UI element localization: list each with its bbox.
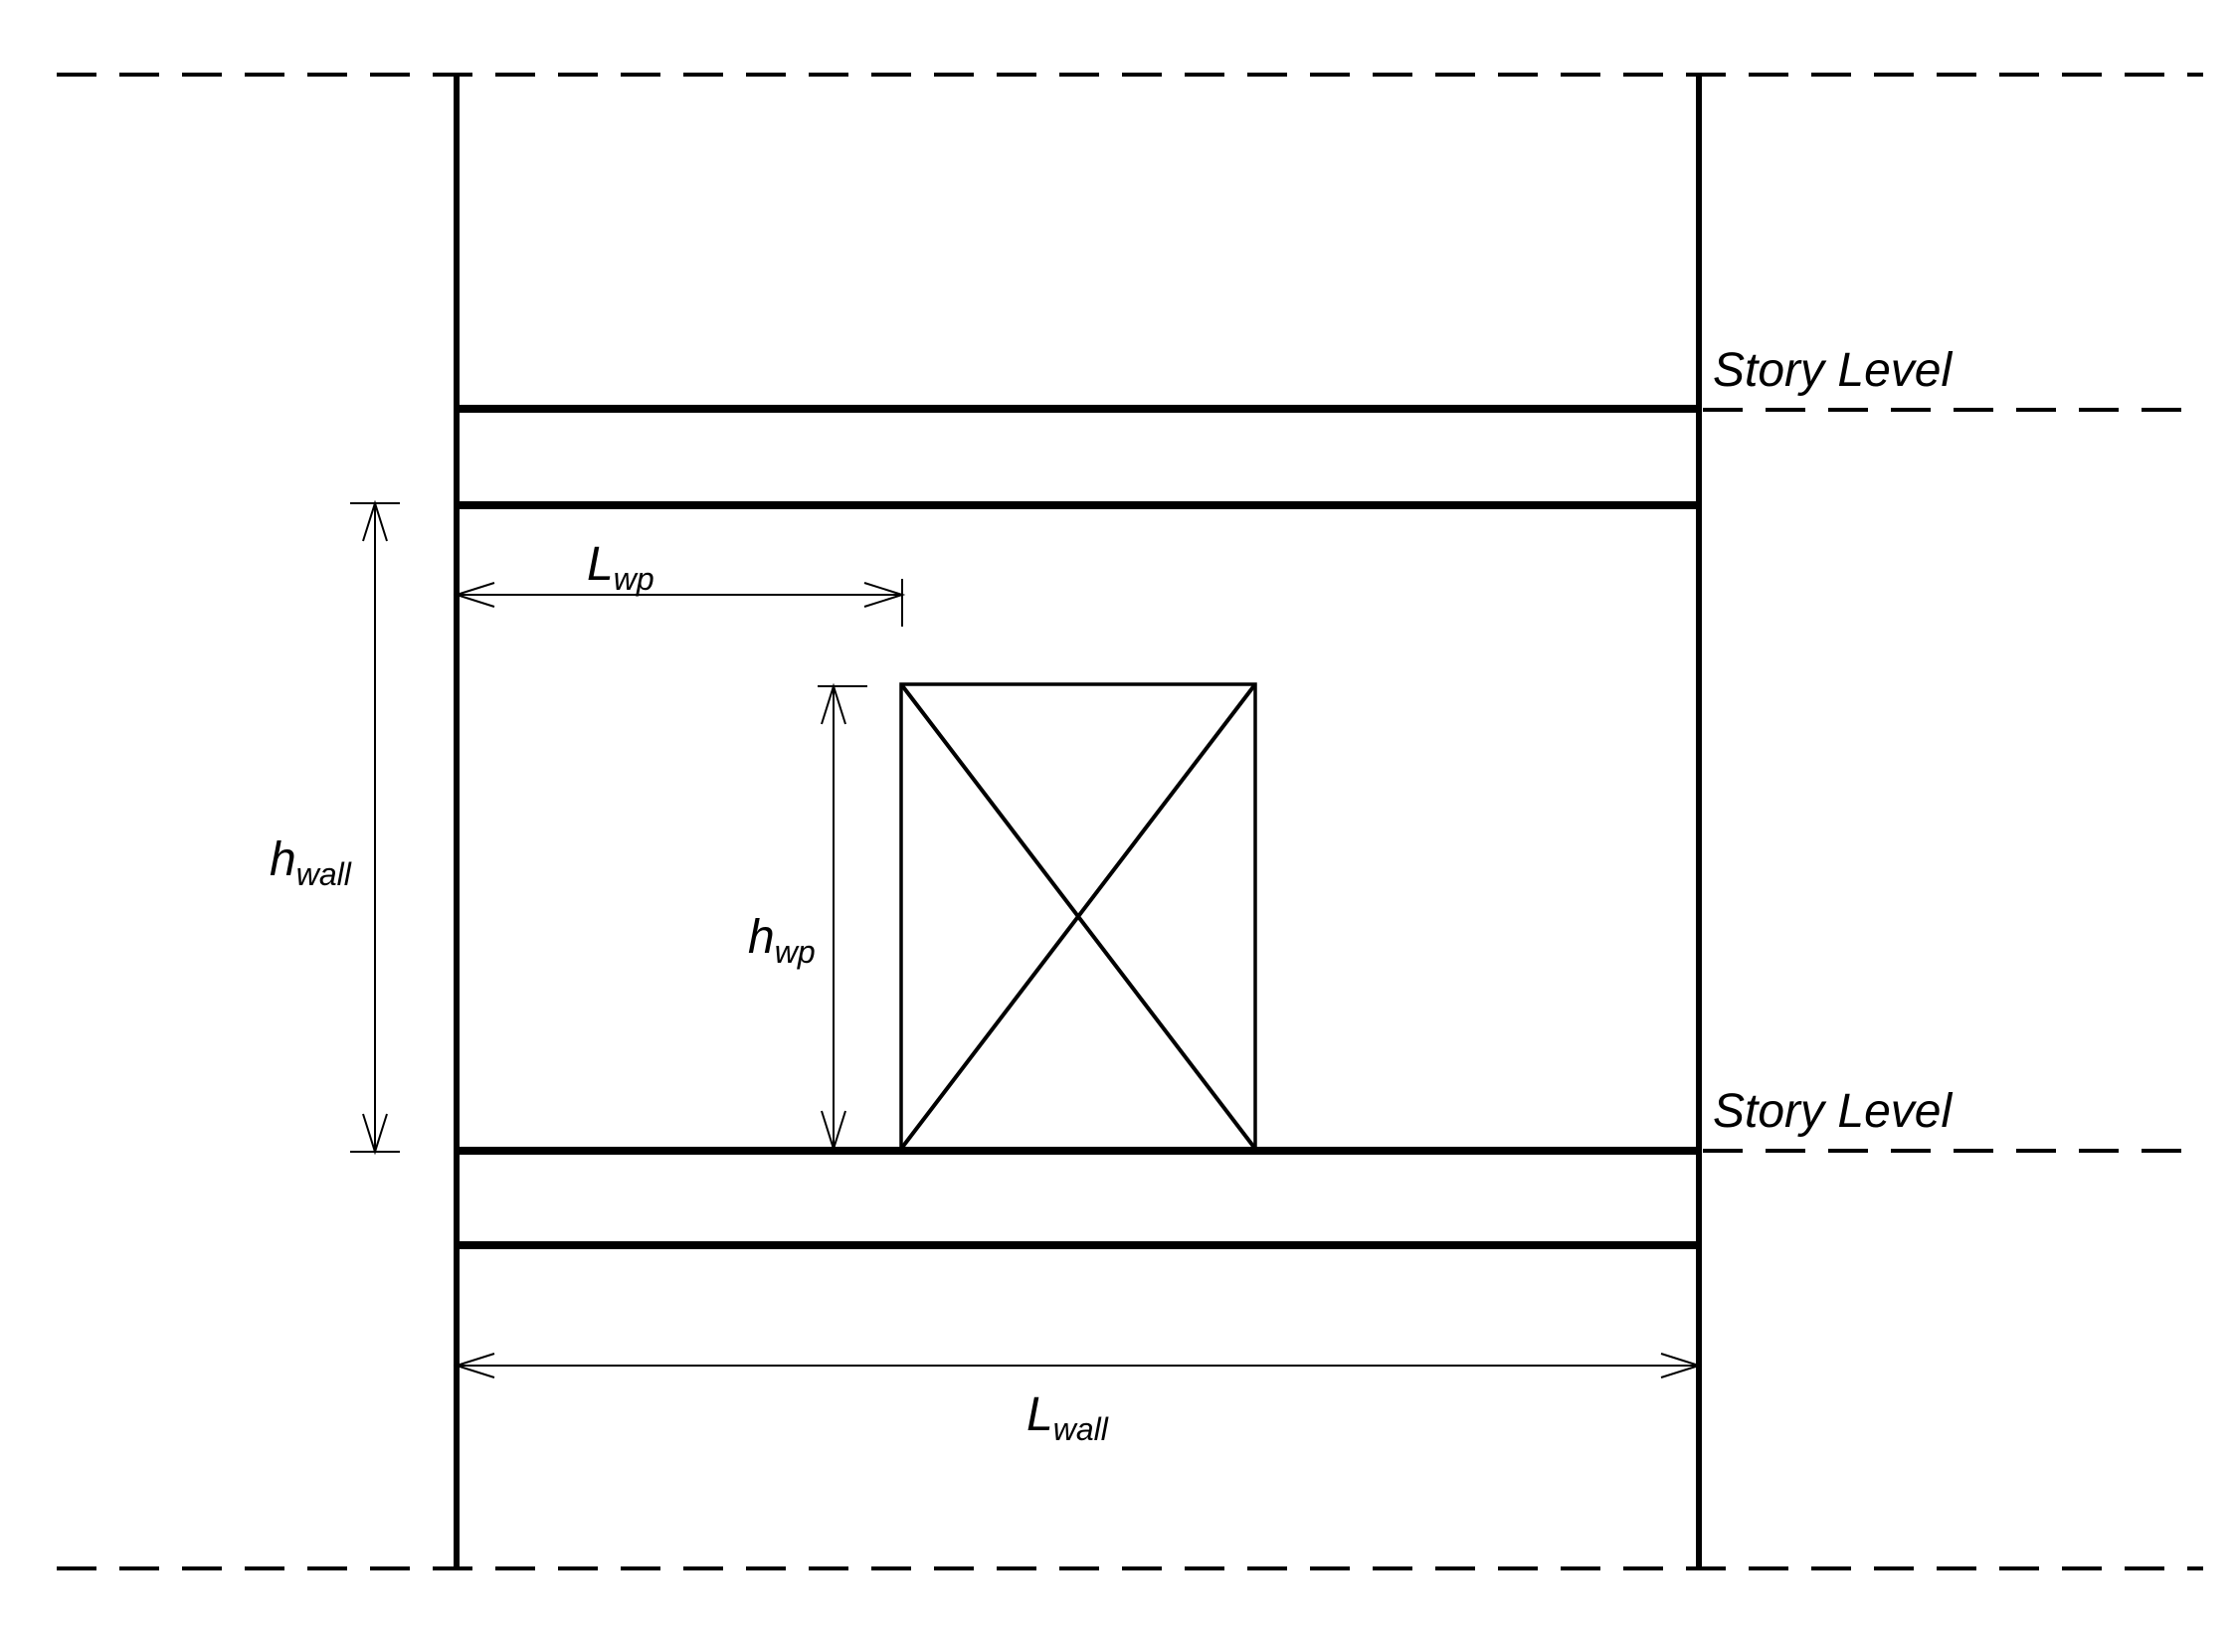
hwall-subscript: wall	[296, 856, 352, 892]
lwp-label: Lwp	[587, 538, 654, 597]
lwp-subscript: wp	[614, 561, 654, 597]
hwall-symbol: h	[270, 833, 296, 886]
lwp-symbol: L	[587, 538, 614, 591]
hwall-dimension: hwall	[270, 503, 400, 1152]
lwall-symbol: L	[1026, 1388, 1053, 1441]
floor-beam-lines	[457, 409, 1699, 1245]
lwall-label: Lwall	[1026, 1388, 1109, 1447]
lwp-dimension: Lwp	[457, 538, 902, 627]
wall-panel	[901, 684, 1255, 1149]
hwp-symbol: h	[748, 911, 775, 964]
story-level-label-top: Story Level	[1713, 344, 1953, 397]
hwp-dimension: hwp	[748, 686, 867, 1149]
hwall-label: hwall	[270, 833, 352, 892]
hwp-label: hwp	[748, 911, 816, 970]
walls	[457, 73, 1699, 1568]
dashed-lines	[57, 75, 2203, 1568]
hwp-subscript: wp	[775, 934, 816, 970]
wall-panel-diagram: Lwp hwp hwall Lwall Story Level	[0, 0, 2237, 1652]
story-level-label-bottom: Story Level	[1713, 1085, 1953, 1138]
lwall-subscript: wall	[1053, 1411, 1109, 1447]
diagram-canvas: Lwp hwp hwall Lwall Story Level	[0, 0, 2237, 1652]
lwall-dimension: Lwall	[457, 1354, 1699, 1447]
